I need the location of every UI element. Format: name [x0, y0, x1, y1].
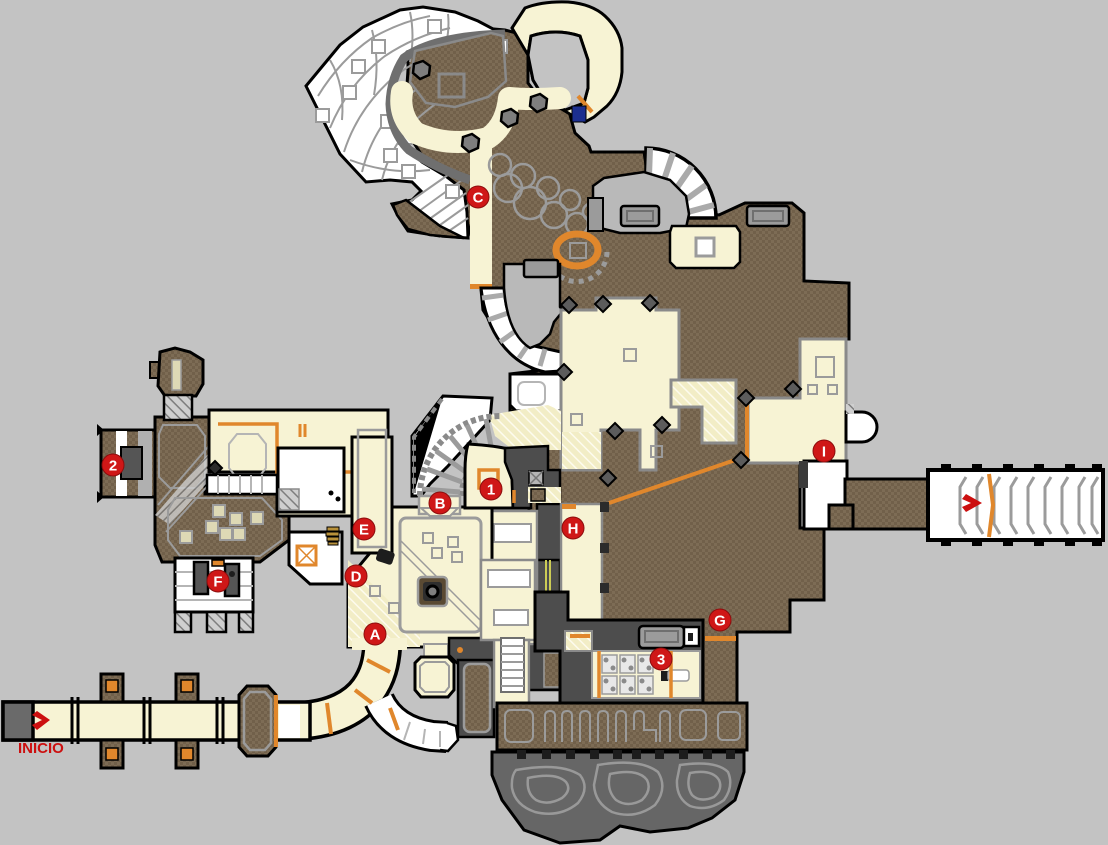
svg-text:C: C: [473, 190, 484, 207]
svg-text:D: D: [351, 569, 362, 586]
svg-text:G: G: [714, 613, 726, 630]
svg-text:I: I: [822, 444, 826, 461]
svg-text:2: 2: [109, 458, 117, 475]
svg-text:A: A: [370, 627, 381, 644]
svg-text:E: E: [359, 522, 369, 539]
svg-text:H: H: [568, 521, 579, 538]
svg-text:1: 1: [487, 482, 495, 499]
svg-text:F: F: [213, 574, 222, 591]
svg-text:B: B: [435, 496, 446, 513]
svg-text:INICIO: INICIO: [18, 740, 64, 757]
svg-text:3: 3: [657, 652, 665, 669]
